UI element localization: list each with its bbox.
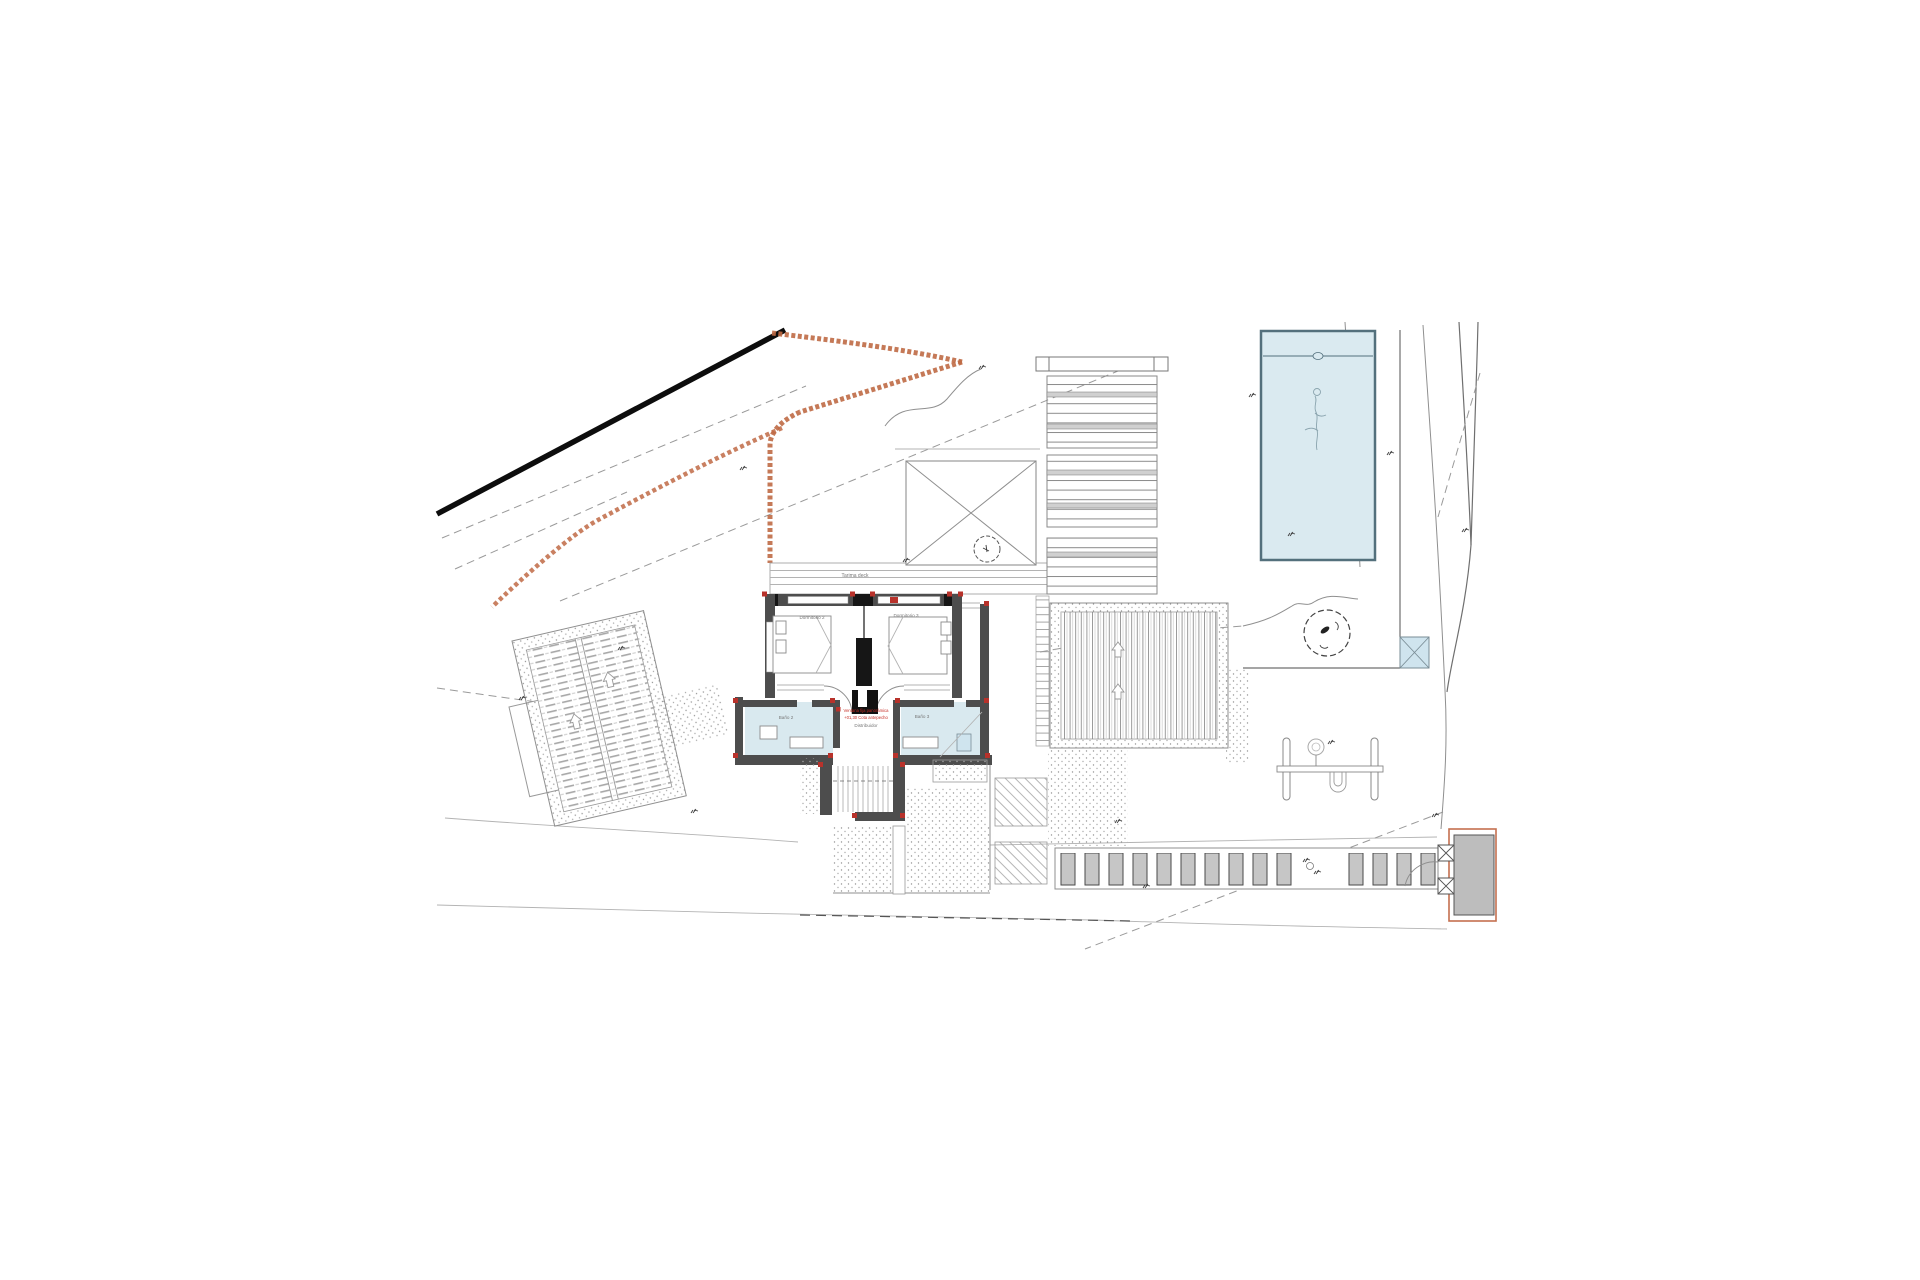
- washbasin-counter: [903, 737, 938, 748]
- window: [788, 597, 848, 604]
- red-note-line1: Ventana fija panorámica: [844, 708, 890, 713]
- driveway-pavers: [1058, 852, 1297, 886]
- bedroom-right-label: Dormitorio 3: [893, 613, 918, 618]
- wardrobe: [856, 638, 872, 686]
- deck-side-strip: [1036, 596, 1049, 746]
- skylight-x: [906, 461, 1036, 565]
- pool: [1261, 331, 1375, 560]
- tree-icon: [1304, 610, 1350, 656]
- window: [878, 597, 940, 604]
- pergola: [1050, 603, 1228, 748]
- utility-square: [1400, 637, 1429, 668]
- wc-icon: [760, 726, 777, 739]
- wall-east: [952, 594, 962, 698]
- driveway: [1055, 848, 1438, 889]
- louver-structure: [1036, 357, 1168, 594]
- bath-left-outer-wall: [735, 697, 743, 762]
- house-floor-plan: [733, 592, 992, 766]
- hall-label: Distribuidor: [854, 723, 878, 728]
- bedroom-left-label: Dormitorio 2: [799, 615, 824, 620]
- double-bed-left: [773, 616, 831, 673]
- boundary-road-line: [437, 330, 785, 514]
- note-marker: [836, 707, 841, 712]
- double-bed-right: [888, 617, 951, 674]
- top-bar: [1036, 357, 1168, 371]
- wall-far-east: [980, 604, 989, 765]
- washbasin-counter: [790, 737, 823, 748]
- tree-icon-small: [974, 536, 1000, 562]
- hatched-planters: [995, 778, 1047, 884]
- pergola-slats: [1061, 612, 1217, 739]
- deck-label: Tarima deck: [842, 573, 869, 579]
- driveway-pavers: [1346, 852, 1436, 886]
- swing-set-icon: [1277, 738, 1383, 800]
- bath-right-label: Baño 3: [915, 714, 930, 719]
- bath-left-label: Baño 2: [779, 715, 794, 720]
- site-plan-drawing: Tarima deck: [0, 0, 1920, 1280]
- red-note-line2: +01,30 Cota antepecho: [844, 715, 888, 720]
- gate-slab: [1454, 835, 1494, 915]
- site-plan-canvas: Tarima deck: [0, 0, 1920, 1280]
- planter: [893, 826, 905, 894]
- deck-strip: Tarima deck: [770, 563, 1047, 594]
